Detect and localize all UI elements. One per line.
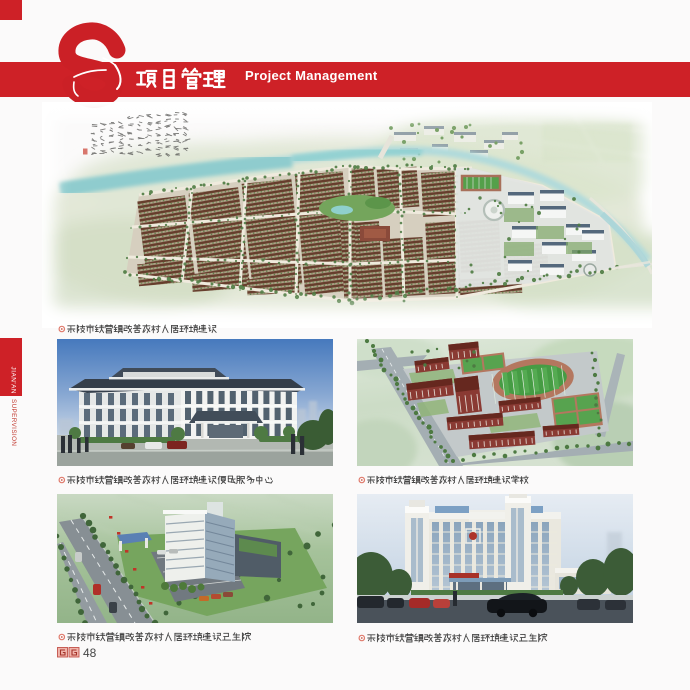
svg-text:JIAN'AN: JIAN'AN: [10, 367, 17, 394]
svg-text:SUPERVISION: SUPERVISION: [10, 399, 17, 446]
